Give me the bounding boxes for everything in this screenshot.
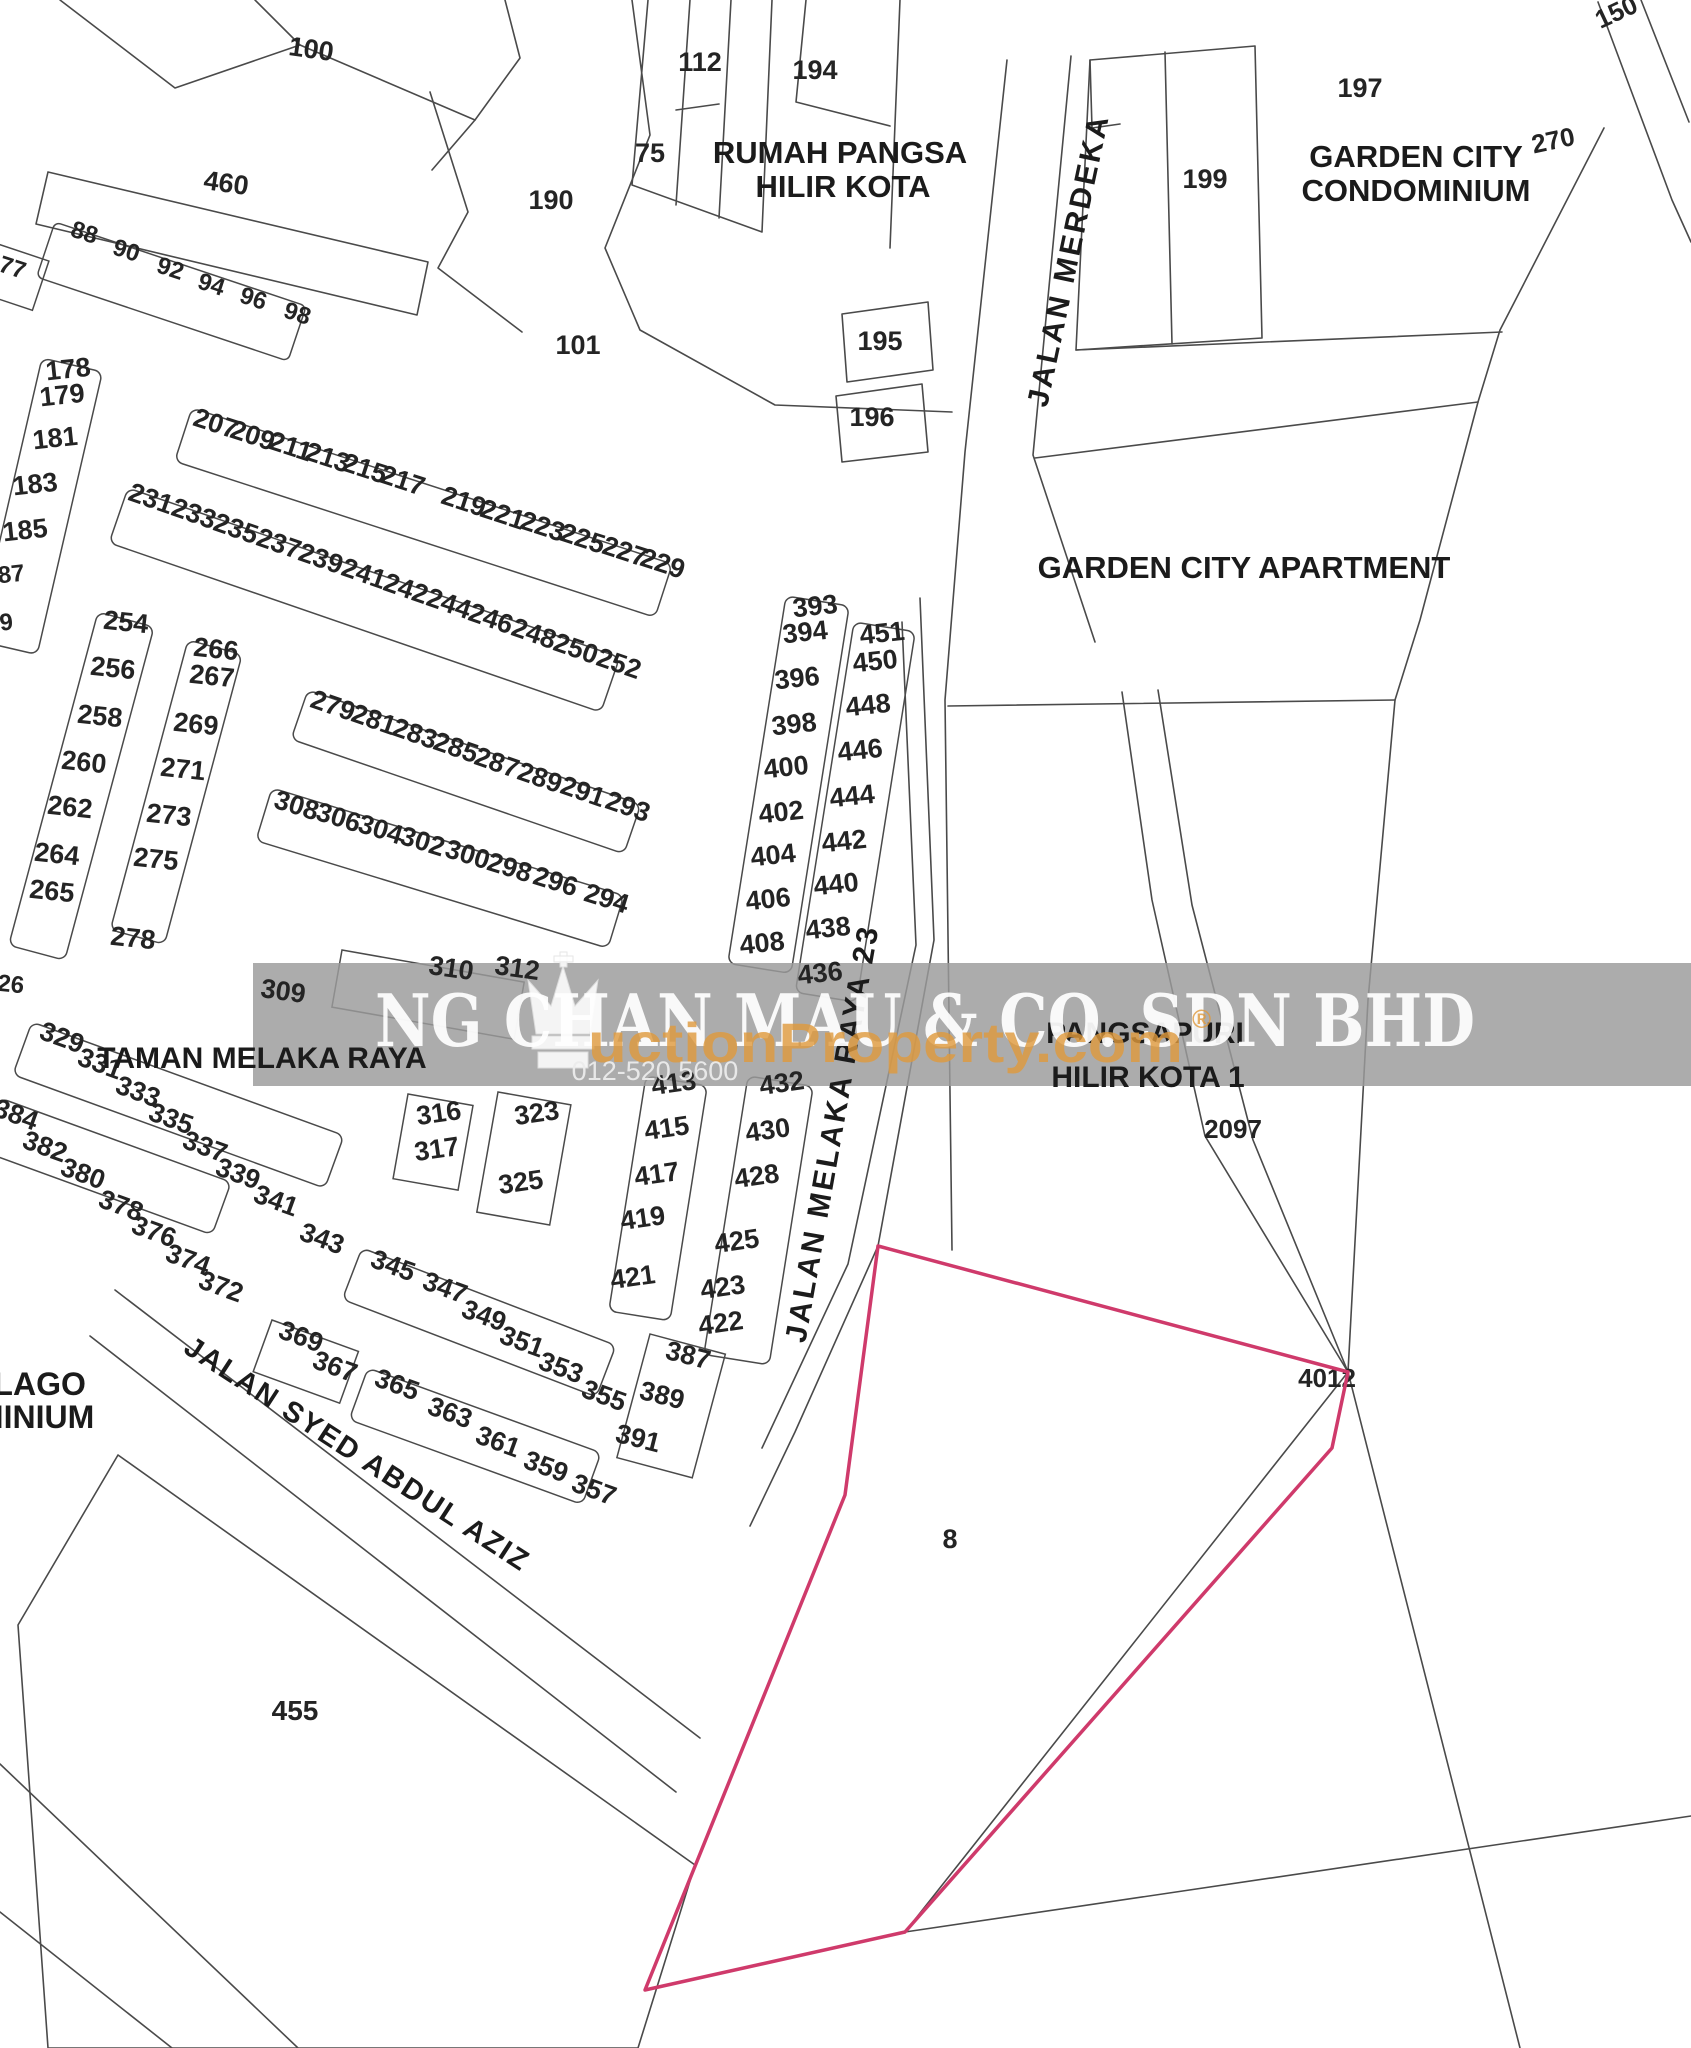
lot-label: 183	[11, 467, 59, 502]
lot-label: 196	[849, 402, 894, 432]
lot-label: 194	[792, 55, 837, 85]
lot-number-layer: 1004608890929496987711275190101194195196…	[0, 0, 1642, 1726]
lot-label: 444	[828, 779, 876, 814]
lot-label: 77	[0, 251, 29, 285]
lot-label: 355	[578, 1374, 631, 1418]
lot-label: 448	[844, 688, 892, 723]
lot-label: 229	[637, 542, 689, 584]
area-label: GARDEN CITY	[1309, 139, 1523, 174]
lot-label: 430	[743, 1112, 792, 1148]
lot-label: 96	[236, 282, 270, 316]
lot-label: 425	[712, 1223, 761, 1259]
lot-label: 101	[555, 330, 600, 360]
lot-label: 291	[557, 770, 609, 813]
lot-label: 408	[738, 926, 786, 961]
lot-label: 88	[67, 216, 101, 250]
lot-label: 396	[773, 661, 821, 696]
cadastral-map-canvas: 1004608890929496987711275190101194195196…	[0, 0, 1691, 2048]
lot-label: 9	[0, 608, 14, 636]
lot-label: 298	[484, 846, 536, 888]
lot-label: 450	[851, 644, 899, 679]
lot-label: 309	[259, 973, 308, 1009]
lot-label: 75	[635, 138, 665, 168]
street-label: JALAN MERDEKA	[1021, 110, 1115, 409]
lot-label: 415	[642, 1110, 691, 1146]
lot-label: 270	[1529, 121, 1578, 159]
lot-label: 100	[287, 31, 336, 67]
lot-label: 260	[60, 745, 108, 780]
lot-label: 2097	[1204, 1114, 1262, 1144]
lot-label: 273	[145, 798, 193, 833]
registered-trademark-icon: ®	[1192, 1004, 1211, 1034]
lot-label: 112	[678, 47, 722, 77]
lot-label: 267	[188, 659, 236, 694]
lot-label: 402	[757, 795, 805, 830]
lot-label: 417	[632, 1156, 681, 1192]
lot-label: 269	[172, 707, 220, 742]
lot-label: 422	[696, 1305, 745, 1341]
area-label: NDOMINIUM	[0, 1399, 94, 1435]
lot-label: 372	[195, 1265, 248, 1309]
watermark-phone-text: 012-520 5600	[572, 1056, 739, 1086]
area-label: RUMAH PANGSA	[713, 135, 967, 170]
lot-label: 197	[1337, 73, 1382, 103]
lot-label: 264	[33, 837, 81, 872]
lot-label: 217	[377, 459, 429, 501]
lot-label: 455	[272, 1695, 319, 1726]
lot-label: 400	[762, 750, 810, 785]
lot-label: 446	[836, 733, 884, 768]
lot-label: 252	[593, 642, 645, 685]
subject-lot-outline	[645, 1246, 1348, 1990]
lot-label: 262	[46, 790, 94, 825]
lot-label: 190	[528, 185, 573, 215]
lot-label: 365	[371, 1363, 424, 1407]
area-label: GARDEN CITY APARTMENT	[1038, 550, 1451, 585]
lot-label: 199	[1182, 164, 1227, 194]
lot-label: 406	[744, 882, 792, 917]
lot-label: 419	[618, 1200, 667, 1236]
lot-label: 325	[496, 1164, 545, 1200]
lot-label: 353	[535, 1346, 588, 1390]
lot-label: 460	[202, 165, 251, 201]
lot-label: 26	[0, 970, 25, 1000]
lot-label: 391	[613, 1418, 664, 1458]
lot-label: 347	[419, 1266, 472, 1310]
area-name-layer: RUMAH PANGSAHILIR KOTAGARDEN CITYCONDOMI…	[0, 135, 1531, 1435]
lot-label: 254	[102, 605, 150, 640]
lot-label: 440	[812, 867, 860, 902]
lot-label: 359	[520, 1445, 573, 1489]
lot-label: 428	[732, 1158, 781, 1194]
lot-label: 293	[602, 785, 654, 828]
area-label: CONDOMINIUM	[1301, 173, 1530, 208]
lot-label: 302	[397, 820, 449, 862]
lot-label: 361	[472, 1420, 525, 1464]
lot-label: 438	[804, 911, 852, 946]
lot-label: 423	[698, 1269, 747, 1305]
lot-label: 404	[749, 838, 797, 873]
lot-label: 98	[280, 297, 314, 331]
lot-label: 389	[637, 1375, 688, 1415]
lot-label: 357	[568, 1468, 621, 1512]
lot-label: 345	[367, 1244, 420, 1288]
lot-label: 256	[89, 651, 137, 686]
subject-lot-number: 8	[942, 1524, 957, 1554]
lot-label: 278	[109, 921, 157, 956]
lot-label: 343	[296, 1217, 349, 1261]
lot-label: 179	[38, 378, 86, 413]
lot-label: 323	[512, 1095, 561, 1131]
lot-label: 394	[781, 615, 829, 650]
lot-label: 181	[31, 421, 79, 456]
lot-label: 363	[424, 1391, 477, 1435]
lot-label: 341	[250, 1179, 303, 1223]
lot-label: 87	[0, 560, 26, 590]
lot-label: 316	[414, 1095, 463, 1131]
lot-label: 317	[412, 1131, 461, 1167]
lot-label: 195	[857, 326, 902, 356]
cadastral-map-page: 1004608890929496987711275190101194195196…	[0, 0, 1691, 2048]
lot-label: 380	[57, 1152, 110, 1196]
area-label: HILIR KOTA	[755, 169, 930, 204]
lot-label: 185	[1, 513, 49, 548]
lot-label: 294	[581, 877, 633, 919]
lot-label: 296	[530, 860, 582, 902]
lot-label: 398	[770, 707, 818, 742]
lot-label: 275	[132, 842, 180, 877]
lot-label: 258	[76, 699, 124, 734]
lot-label: 265	[28, 874, 76, 909]
lot-label: 150	[1590, 0, 1642, 35]
area-label: ASA LAGO	[0, 1366, 86, 1402]
lot-label: 271	[159, 752, 207, 787]
lot-label: 367	[309, 1345, 362, 1389]
lot-label: 421	[608, 1259, 657, 1295]
lot-label: 442	[820, 824, 868, 859]
lot-label: 94	[194, 268, 228, 302]
lot-label: 90	[109, 234, 143, 268]
